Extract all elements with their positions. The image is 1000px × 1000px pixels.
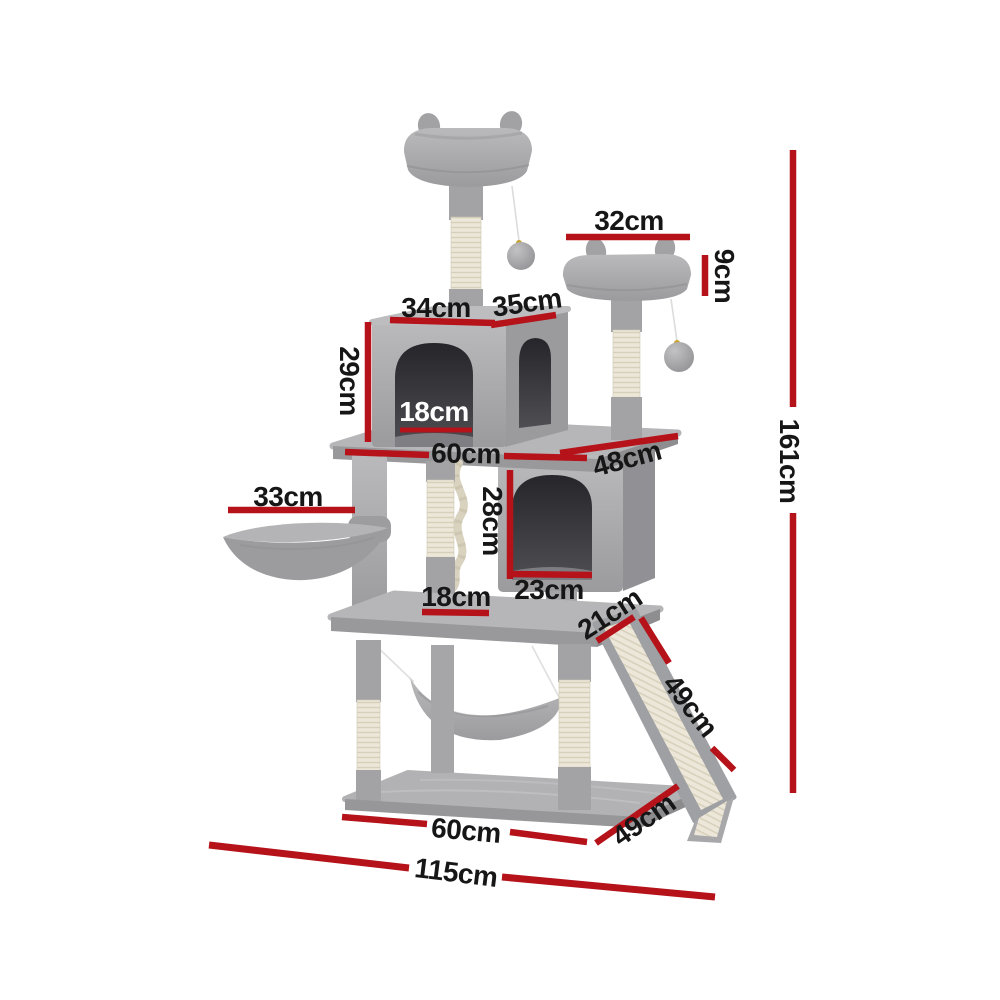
dim-label-basket-width: 33cm [253,483,323,511]
dim-label-upper-condo-height: 29cm [335,346,363,416]
dim-label-base-width: 60cm [430,814,502,848]
dim-line-lower-ledge-width [422,612,489,613]
dim-label-lower-condo-door-width: 23cm [514,576,584,604]
upper-condo-side-opening [519,338,551,428]
dim-line-middle-platform-width-a [345,452,429,455]
hanging-ball-lower [664,299,694,372]
product-dimension-image: 32cm 9cm 34cm 35cm 29cm 18cm 60cm 48cm 2… [0,0,1000,1000]
dim-line-base-width-b [510,832,587,842]
second-perch [563,234,691,301]
hanging-ball-top [507,186,535,270]
dim-label-upper-condo-roof-width: 34cm [401,294,471,322]
dim-line-overall-width-b [502,877,715,897]
dim-label-second-perch-width: 32cm [594,207,664,235]
second-perch-post [611,298,642,440]
dim-label-upper-condo-door-width: 18cm [399,398,469,426]
dim-label-overall-height: 161cm [775,419,803,504]
hammock [371,641,562,740]
top-perch [404,109,532,187]
lower-condo-door-opening [512,475,592,580]
dim-label-middle-platform-width: 60cm [431,439,501,468]
dim-line-base-width-a [342,817,427,824]
dim-line-middle-platform-width-b [504,456,587,458]
dim-line-overall-width-a [209,845,409,868]
dim-label-lower-condo-height: 28cm [478,486,506,556]
dim-label-lower-ledge-width: 18cm [421,583,491,611]
dim-label-second-perch-height: 9cm [710,249,738,304]
